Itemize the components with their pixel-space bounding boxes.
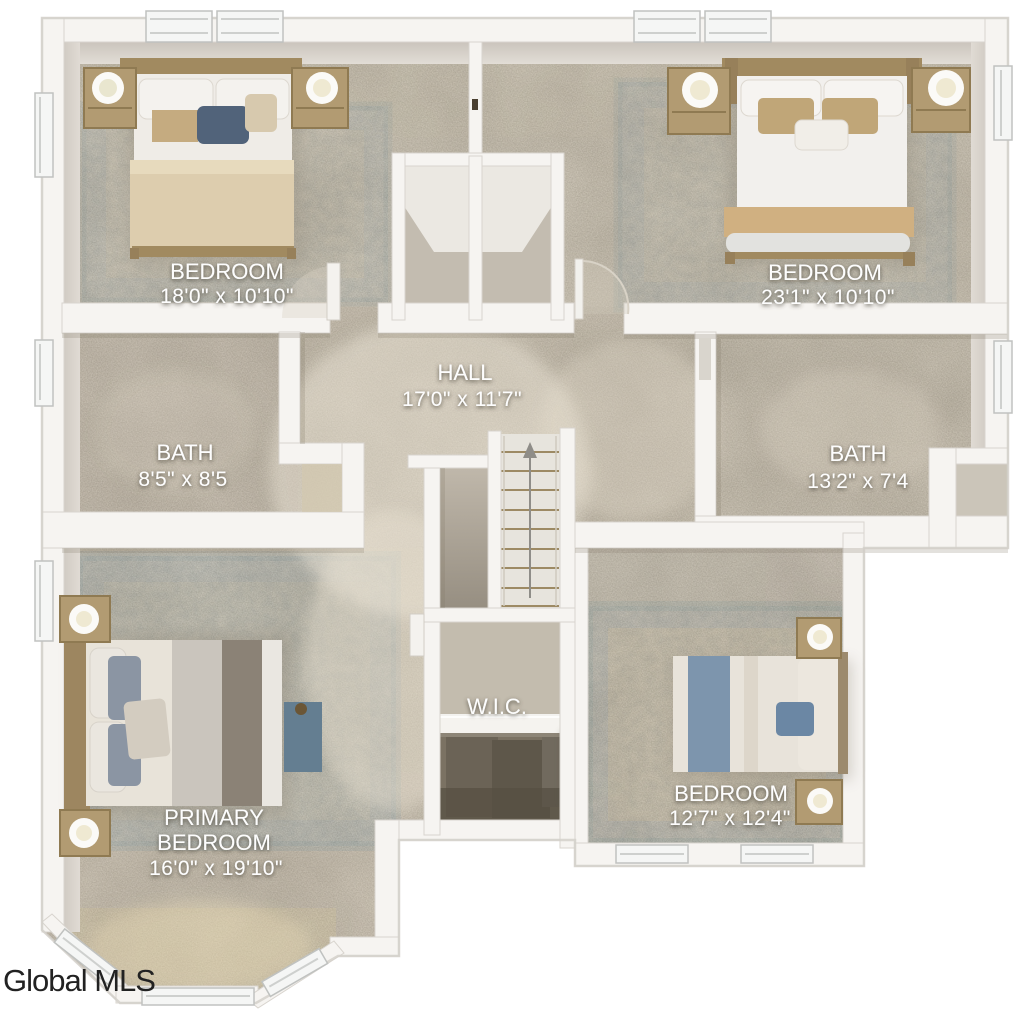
svg-text:Global MLS: Global MLS: [3, 963, 155, 998]
svg-text:17'0" x 11'7": 17'0" x 11'7": [402, 388, 522, 411]
svg-text:18'0" x 10'10": 18'0" x 10'10": [160, 285, 294, 308]
svg-text:16'0" x 19'10": 16'0" x 19'10": [149, 857, 283, 880]
svg-text:12'7" x 12'4": 12'7" x 12'4": [669, 807, 791, 830]
svg-text:BEDROOM: BEDROOM: [768, 260, 882, 285]
svg-text:HALL: HALL: [437, 360, 492, 385]
svg-text:PRIMARY: PRIMARY: [164, 805, 264, 830]
svg-text:BATH: BATH: [156, 440, 213, 465]
svg-text:W.I.C.: W.I.C.: [467, 694, 527, 719]
svg-text:8'5" x 8'5: 8'5" x 8'5: [138, 468, 227, 491]
svg-text:BATH: BATH: [829, 441, 886, 466]
svg-text:BEDROOM: BEDROOM: [157, 830, 271, 855]
svg-text:BEDROOM: BEDROOM: [674, 781, 788, 806]
svg-text:13'2" x 7'4: 13'2" x 7'4: [807, 470, 909, 493]
svg-text:23'1" x 10'10": 23'1" x 10'10": [761, 286, 895, 309]
svg-text:BEDROOM: BEDROOM: [170, 259, 284, 284]
